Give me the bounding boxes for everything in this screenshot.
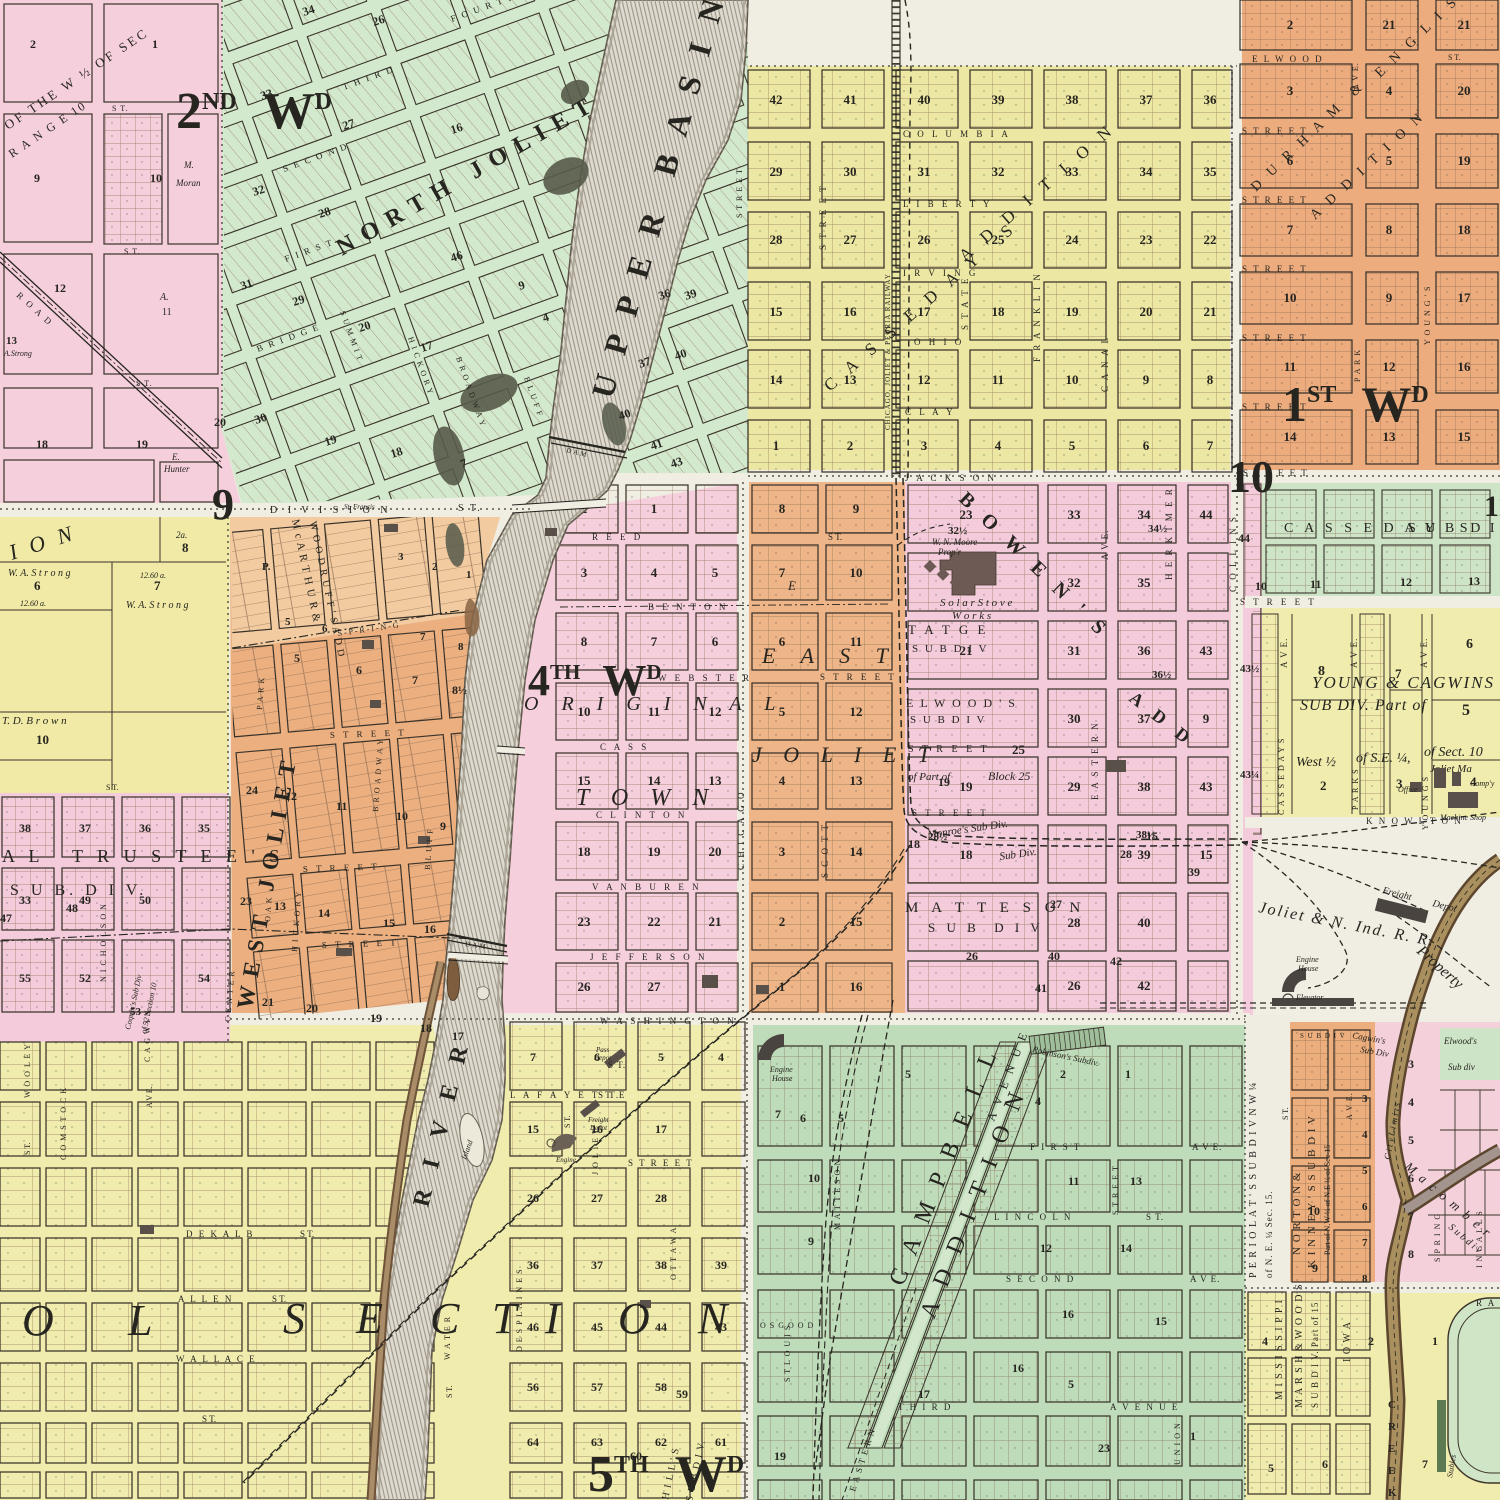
svg-text:C L A Y: C L A Y <box>905 407 956 417</box>
svg-text:43¼: 43¼ <box>1240 769 1259 781</box>
svg-text:Elwood's: Elwood's <box>1443 1036 1477 1046</box>
svg-text:57: 57 <box>591 1380 603 1394</box>
svg-text:37: 37 <box>591 1258 603 1272</box>
svg-text:55: 55 <box>19 971 31 985</box>
svg-text:9: 9 <box>1312 1261 1318 1275</box>
svg-text:34: 34 <box>1138 507 1152 522</box>
svg-text:23: 23 <box>1140 232 1154 247</box>
svg-text:12: 12 <box>1040 1241 1052 1255</box>
svg-text:SUB DIV. Part of: SUB DIV. Part of <box>1300 697 1428 714</box>
svg-text:38: 38 <box>1138 779 1152 794</box>
svg-text:F I R S T: F I R S T <box>1030 1142 1081 1152</box>
svg-text:32½: 32½ <box>948 525 967 537</box>
svg-text:15: 15 <box>1458 429 1472 444</box>
svg-text:36: 36 <box>527 1258 539 1272</box>
svg-text:C A S S E D A Y S: C A S S E D A Y S <box>1277 738 1286 815</box>
svg-text:K I N N E Y ' S S U B D I V: K I N N E Y ' S S U B D I V <box>1306 1115 1318 1268</box>
svg-text:T O W N: T O W N <box>576 785 716 811</box>
svg-text:22: 22 <box>1204 232 1217 247</box>
svg-text:6: 6 <box>34 578 41 593</box>
svg-text:E L W O O D ' S: E L W O O D ' S <box>906 696 1017 710</box>
svg-text:S T R E E T: S T R E E T <box>1242 333 1308 343</box>
svg-text:23: 23 <box>578 914 592 929</box>
svg-text:19: 19 <box>938 775 950 789</box>
svg-text:C L I N T O N: C L I N T O N <box>596 810 687 820</box>
svg-text:21: 21 <box>709 914 722 929</box>
svg-text:C: C <box>1388 1399 1396 1411</box>
svg-text:E: E <box>355 1294 383 1343</box>
svg-text:46: 46 <box>527 1320 539 1334</box>
svg-text:43½: 43½ <box>1240 663 1259 675</box>
svg-text:I: I <box>544 1294 562 1343</box>
svg-text:St. Francis: St. Francis <box>344 503 375 511</box>
svg-text:30: 30 <box>1068 711 1081 726</box>
svg-text:29: 29 <box>770 164 784 179</box>
svg-text:54: 54 <box>198 971 210 985</box>
svg-text:17: 17 <box>918 1387 930 1401</box>
svg-text:20: 20 <box>306 1001 318 1015</box>
svg-text:A V E.: A V E. <box>1345 1092 1354 1120</box>
svg-text:C O M S T O C K: C O M S T O C K <box>59 1087 68 1160</box>
svg-text:9: 9 <box>212 480 234 529</box>
svg-text:36: 36 <box>1138 643 1152 658</box>
svg-text:R E E D: R E E D <box>592 532 643 542</box>
svg-text:15: 15 <box>1155 1314 1167 1328</box>
svg-text:11: 11 <box>1484 490 1500 523</box>
svg-text:38: 38 <box>655 1258 667 1272</box>
svg-text:52: 52 <box>79 971 91 985</box>
svg-text:5: 5 <box>1268 1461 1274 1475</box>
svg-text:S T A T E: S T A T E <box>960 277 970 330</box>
svg-text:N I C H O L S O N: N I C H O L S O N <box>99 903 108 982</box>
svg-text:S T.: S T. <box>1448 53 1461 62</box>
svg-text:19: 19 <box>1458 153 1472 168</box>
svg-text:1: 1 <box>466 569 472 581</box>
svg-text:9: 9 <box>1203 711 1210 726</box>
svg-text:42: 42 <box>770 92 783 107</box>
svg-text:8: 8 <box>1408 1247 1414 1261</box>
svg-text:M.: M. <box>183 160 194 170</box>
svg-text:8: 8 <box>1207 372 1214 387</box>
svg-text:O R I G I N A L: O R I G I N A L <box>524 693 784 715</box>
svg-text:7: 7 <box>530 1050 536 1064</box>
svg-text:S T.: S T. <box>106 783 119 792</box>
svg-text:39: 39 <box>715 1258 727 1272</box>
svg-text:1: 1 <box>1190 1429 1196 1443</box>
svg-text:1: 1 <box>152 37 158 51</box>
svg-text:12: 12 <box>918 372 931 387</box>
svg-text:6: 6 <box>1322 1457 1328 1471</box>
svg-text:P E R I O L A T ' S S U B D: P E R I O L A T ' S S U B D I V N W ¼ <box>1248 1082 1259 1278</box>
svg-text:43: 43 <box>1200 643 1214 658</box>
svg-text:S T R E E T: S T R E E T <box>1242 195 1308 205</box>
svg-text:J O L I E T: J O L I E T <box>591 1128 600 1175</box>
svg-text:6: 6 <box>1408 1171 1414 1185</box>
svg-text:19: 19 <box>1066 304 1080 319</box>
svg-text:11: 11 <box>1310 577 1321 591</box>
svg-text:7: 7 <box>1362 1237 1368 1249</box>
svg-text:E: E <box>1388 1465 1395 1477</box>
svg-text:22: 22 <box>648 914 661 929</box>
svg-text:5: 5 <box>1362 1165 1368 1177</box>
svg-text:House: House <box>1297 964 1319 973</box>
svg-text:7: 7 <box>412 673 418 687</box>
svg-text:19: 19 <box>648 844 662 859</box>
svg-text:44: 44 <box>1238 531 1250 545</box>
svg-text:C A N A L: C A N A L <box>1100 336 1110 392</box>
svg-text:64: 64 <box>527 1435 539 1449</box>
svg-text:A V E N U E: A V E N U E <box>1110 1402 1179 1412</box>
svg-text:12: 12 <box>54 281 66 295</box>
svg-text:10: 10 <box>1308 1204 1320 1218</box>
svg-text:26: 26 <box>918 232 932 247</box>
svg-text:8: 8 <box>458 641 464 653</box>
svg-text:14: 14 <box>850 844 864 859</box>
svg-text:37: 37 <box>79 821 91 835</box>
svg-text:15: 15 <box>527 1122 539 1136</box>
svg-text:A V E.: A V E. <box>1349 638 1359 668</box>
svg-text:23: 23 <box>1098 1441 1110 1455</box>
svg-text:24: 24 <box>246 783 258 797</box>
svg-text:23: 23 <box>240 894 252 908</box>
svg-text:A V E.: A V E. <box>1190 1274 1220 1284</box>
svg-text:1: 1 <box>651 501 658 516</box>
svg-text:10: 10 <box>1066 372 1079 387</box>
svg-text:18: 18 <box>36 437 48 451</box>
svg-text:11: 11 <box>162 307 172 318</box>
svg-text:E: E <box>1388 1443 1395 1455</box>
svg-text:S T.: S T. <box>23 1142 32 1155</box>
svg-text:YOUNG & CAGWINS: YOUNG & CAGWINS <box>1312 673 1495 692</box>
svg-text:2a.: 2a. <box>176 530 187 540</box>
svg-text:16: 16 <box>850 979 864 994</box>
svg-text:S T.: S T. <box>300 1229 314 1239</box>
svg-text:6: 6 <box>712 634 719 649</box>
svg-text:Block 25: Block 25 <box>988 769 1030 783</box>
svg-text:U N I O N: U N I O N <box>1173 1422 1182 1465</box>
svg-text:W A L L A C E: W A L L A C E <box>176 1354 257 1364</box>
svg-text:West ½: West ½ <box>1296 755 1336 770</box>
svg-text:S C O T T: S C O T T <box>820 823 830 878</box>
svg-text:41: 41 <box>1035 981 1047 995</box>
svg-text:E L W O O D: E L W O O D <box>1252 54 1324 64</box>
svg-text:36: 36 <box>139 821 151 835</box>
svg-text:A V E.: A V E. <box>1279 638 1289 668</box>
svg-text:56: 56 <box>527 1380 539 1394</box>
svg-text:S T R E E T: S T R E E T <box>1242 126 1308 136</box>
svg-text:3: 3 <box>1408 1057 1414 1071</box>
svg-text:S T.: S T. <box>124 247 141 256</box>
svg-text:8: 8 <box>1362 1273 1368 1285</box>
svg-text:K N O W L T O N: K N O W L T O N <box>1366 816 1463 826</box>
svg-text:of S.E. ¼,: of S.E. ¼, <box>1356 751 1410 766</box>
svg-text:S T R E E T: S T R E E T <box>908 744 990 755</box>
svg-text:D E K A L B: D E K A L B <box>186 1229 254 1239</box>
svg-text:N O R T O N &: N O R T O N & <box>1291 1172 1303 1256</box>
svg-text:28½: 28½ <box>928 831 947 843</box>
svg-text:7: 7 <box>1408 1209 1414 1223</box>
svg-text:18: 18 <box>992 304 1006 319</box>
svg-text:of N. E. ¼ Sec. 15.: of N. E. ¼ Sec. 15. <box>1264 1191 1274 1279</box>
svg-text:47: 47 <box>0 911 12 925</box>
svg-text:39: 39 <box>992 92 1006 107</box>
svg-text:L: L <box>127 1296 152 1345</box>
svg-text:25: 25 <box>1012 742 1026 757</box>
svg-text:N: N <box>697 1294 730 1343</box>
svg-text:18: 18 <box>908 837 920 851</box>
svg-text:19: 19 <box>370 1011 382 1025</box>
svg-text:5: 5 <box>838 1111 844 1125</box>
svg-text:21: 21 <box>1383 17 1396 32</box>
svg-text:S T.: S T. <box>202 1414 216 1424</box>
svg-text:S U B D I V: S U B D I V <box>1300 1032 1346 1040</box>
svg-text:21: 21 <box>1204 304 1217 319</box>
svg-text:T. D. B r o w n: T. D. B r o w n <box>2 715 67 727</box>
svg-text:2: 2 <box>1060 1067 1066 1081</box>
svg-text:13: 13 <box>6 335 18 347</box>
svg-text:S T R E E T: S T R E E T <box>820 672 897 682</box>
svg-text:A V E.: A V E. <box>1192 1142 1222 1152</box>
svg-text:W E B S T E R: W E B S T E R <box>658 673 752 683</box>
svg-text:14: 14 <box>1120 1241 1132 1255</box>
svg-text:Engine: Engine <box>555 1156 576 1164</box>
svg-text:4: 4 <box>1262 1334 1268 1348</box>
svg-text:3: 3 <box>581 565 588 580</box>
svg-text:5: 5 <box>1462 702 1470 719</box>
svg-text:12: 12 <box>1400 575 1412 589</box>
svg-text:S T R E E T: S T R E E T <box>1243 468 1309 478</box>
svg-text:32: 32 <box>992 164 1005 179</box>
svg-text:I O W A: I O W A <box>1342 1321 1353 1362</box>
svg-text:7: 7 <box>651 634 658 649</box>
svg-text:10: 10 <box>808 1171 820 1185</box>
svg-text:Pass: Pass <box>595 1046 610 1054</box>
svg-text:3: 3 <box>921 438 928 453</box>
svg-text:6: 6 <box>1466 637 1473 652</box>
svg-text:27: 27 <box>1050 897 1062 911</box>
svg-text:D E S P L A I N E S: D E S P L A I N E S <box>515 1268 524 1352</box>
svg-text:C O L L I N S: C O L L I N S <box>1228 515 1238 592</box>
svg-text:R: R <box>1388 1421 1397 1433</box>
svg-text:16: 16 <box>844 304 858 319</box>
svg-text:42: 42 <box>1138 978 1151 993</box>
svg-text:A V E.: A V E. <box>145 1086 154 1108</box>
svg-text:8: 8 <box>779 501 786 516</box>
svg-text:28: 28 <box>1120 847 1132 861</box>
svg-text:8: 8 <box>182 540 189 555</box>
svg-text:S P R I N G: S P R I N G <box>1433 1213 1442 1262</box>
svg-text:10: 10 <box>36 732 49 747</box>
svg-text:B E N T O N: B E N T O N <box>648 602 728 612</box>
svg-text:20: 20 <box>1458 83 1471 98</box>
svg-text:12.60 a.: 12.60 a. <box>140 571 166 580</box>
svg-text:Elevator: Elevator <box>1295 993 1324 1002</box>
svg-text:7: 7 <box>154 578 161 593</box>
svg-text:4: 4 <box>1408 1095 1414 1109</box>
svg-text:15: 15 <box>1200 847 1214 862</box>
svg-text:16: 16 <box>424 922 436 936</box>
svg-text:J A C K S O N: J A C K S O N <box>905 473 997 483</box>
svg-text:2: 2 <box>1287 17 1294 32</box>
svg-text:26: 26 <box>1068 978 1082 993</box>
svg-text:11: 11 <box>1068 1174 1079 1188</box>
svg-text:T A T G E: T A T G E <box>908 622 988 637</box>
svg-text:20: 20 <box>1140 304 1153 319</box>
svg-text:36: 36 <box>1204 92 1218 107</box>
svg-text:2: 2 <box>1368 1334 1374 1348</box>
svg-text:4: 4 <box>1362 1129 1368 1141</box>
svg-text:38½: 38½ <box>1136 829 1155 841</box>
svg-text:S U B D I V: S U B D I V <box>910 714 987 726</box>
svg-text:A.Strong: A.Strong <box>3 349 32 358</box>
svg-text:W. A. S t r o n g: W. A. S t r o n g <box>126 600 189 611</box>
svg-text:5: 5 <box>294 651 300 665</box>
svg-text:L I N C O L N: L I N C O L N <box>994 1212 1072 1222</box>
svg-text:E: E <box>787 578 796 593</box>
svg-text:S T.: S T. <box>1281 1107 1290 1120</box>
svg-text:S T.: S T. <box>563 1115 572 1128</box>
svg-text:Freight: Freight <box>587 1116 610 1124</box>
svg-text:S T R E E T: S T R E E T <box>1242 402 1308 412</box>
svg-text:of Sect. 10: of Sect. 10 <box>1424 745 1483 760</box>
svg-text:S T R E E T: S T R E E T <box>1242 264 1308 274</box>
svg-text:5: 5 <box>658 1050 664 1064</box>
svg-text:W A S H I N G T O N: W A S H I N G T O N <box>600 1016 737 1026</box>
svg-text:10: 10 <box>1284 290 1297 305</box>
svg-text:W A T E R: W A T E R <box>443 1316 452 1360</box>
svg-text:13: 13 <box>274 899 286 913</box>
svg-text:Moran: Moran <box>175 178 201 188</box>
svg-text:5: 5 <box>905 1067 911 1081</box>
svg-text:4: 4 <box>995 438 1002 453</box>
svg-text:3: 3 <box>779 844 786 859</box>
svg-text:16: 16 <box>1458 359 1472 374</box>
svg-text:15: 15 <box>770 304 784 319</box>
svg-text:38: 38 <box>1066 92 1080 107</box>
svg-text:19: 19 <box>136 437 148 451</box>
svg-text:CHICAGO, JOLIET & PEORIA RAILW: CHICAGO, JOLIET & PEORIA RAILWAY <box>884 273 892 430</box>
svg-text:11: 11 <box>1284 359 1296 374</box>
svg-text:2: 2 <box>30 37 36 51</box>
svg-text:S U B. D I V.: S U B. D I V. <box>10 882 147 899</box>
svg-text:9: 9 <box>440 819 446 833</box>
svg-text:E A S T E R N: E A S T E R N <box>1090 721 1100 800</box>
svg-text:S U B D I V: S U B D I V <box>912 643 989 655</box>
svg-text:17: 17 <box>1458 290 1472 305</box>
svg-text:39: 39 <box>1188 865 1200 879</box>
svg-text:36½: 36½ <box>1152 669 1171 681</box>
svg-text:28: 28 <box>770 232 784 247</box>
svg-text:L I B E R T Y: L I B E R T Y <box>903 199 993 209</box>
svg-text:S T.: S T. <box>112 104 129 113</box>
svg-text:8: 8 <box>1318 664 1325 679</box>
svg-text:S U B D I V.: S U B D I V. <box>1408 521 1500 536</box>
svg-text:24: 24 <box>1066 232 1080 247</box>
svg-text:17: 17 <box>655 1122 667 1136</box>
svg-text:O T T A W A: O T T A W A <box>669 1227 678 1280</box>
svg-text:4: 4 <box>1035 1094 1041 1108</box>
svg-text:20: 20 <box>214 415 226 429</box>
svg-text:48: 48 <box>66 901 78 915</box>
svg-text:41: 41 <box>844 92 857 107</box>
svg-text:P.: P. <box>262 561 271 573</box>
svg-text:O H I O: O H I O <box>914 337 964 347</box>
svg-text:7: 7 <box>1287 222 1294 237</box>
svg-text:Engine: Engine <box>1295 955 1319 964</box>
svg-text:3: 3 <box>1287 83 1294 98</box>
svg-text:S U B D I V: S U B D I V <box>928 920 1044 935</box>
svg-text:19: 19 <box>774 1449 786 1463</box>
svg-text:1: 1 <box>1432 1334 1438 1348</box>
svg-text:O A K: O A K <box>263 896 274 922</box>
svg-text:M A T T E S O N: M A T T E S O N <box>833 1159 842 1230</box>
svg-text:F R A N K L I N: F R A N K L I N <box>1032 272 1042 362</box>
svg-text:Hunter: Hunter <box>163 464 190 474</box>
svg-text:26: 26 <box>578 979 592 994</box>
svg-text:6: 6 <box>800 1111 806 1125</box>
svg-text:16: 16 <box>1062 1307 1074 1321</box>
svg-text:13: 13 <box>850 773 864 788</box>
svg-text:Engine: Engine <box>769 1065 793 1074</box>
svg-text:12: 12 <box>285 789 297 803</box>
svg-text:40: 40 <box>1048 949 1060 963</box>
svg-text:A V E.: A V E. <box>1351 62 1360 90</box>
svg-text:7: 7 <box>420 631 426 643</box>
svg-text:43: 43 <box>1200 779 1214 794</box>
svg-text:13: 13 <box>1468 574 1480 588</box>
svg-text:26: 26 <box>527 1191 539 1205</box>
svg-text:7: 7 <box>1395 666 1402 681</box>
svg-text:42: 42 <box>1110 954 1122 968</box>
svg-text:Part of N.W ¼ of N.E ¼ of Sec: Part of N.W ¼ of N.E ¼ of Sec 15 <box>1323 1145 1332 1255</box>
svg-text:W o r k s: W o r k s <box>952 610 991 622</box>
svg-text:S U B D I V. Part of 15: S U B D I V. Part of 15 <box>1310 1302 1320 1408</box>
svg-text:40: 40 <box>1138 915 1151 930</box>
svg-text:S T.: S T. <box>1146 1212 1164 1222</box>
svg-text:37: 37 <box>1140 92 1154 107</box>
svg-text:30: 30 <box>844 164 857 179</box>
svg-text:O: O <box>22 1296 54 1345</box>
svg-text:26: 26 <box>966 949 978 963</box>
svg-text:S T.: S T. <box>598 1090 620 1100</box>
svg-text:6: 6 <box>322 623 328 635</box>
svg-text:W O O L E Y: W O O L E Y <box>23 1043 32 1098</box>
svg-text:5: 5 <box>1068 1377 1074 1391</box>
svg-text:1: 1 <box>773 438 780 453</box>
svg-text:10: 10 <box>1255 579 1267 593</box>
svg-text:39: 39 <box>1138 847 1152 862</box>
svg-text:34½: 34½ <box>1148 523 1167 535</box>
svg-text:9: 9 <box>853 501 860 516</box>
svg-text:S T.: S T. <box>608 1060 626 1070</box>
svg-text:14: 14 <box>770 372 784 387</box>
svg-text:12.60 a.: 12.60 a. <box>20 599 46 608</box>
svg-text:3: 3 <box>398 551 404 563</box>
svg-text:58: 58 <box>655 1380 667 1394</box>
svg-text:M I S S I S S I P P I: M I S S I S S I P P I <box>1274 1299 1285 1400</box>
svg-text:7: 7 <box>775 1107 781 1121</box>
svg-text:4: 4 <box>1470 774 1477 789</box>
svg-text:J E F F E R S O N: J E F F E R S O N <box>590 952 708 962</box>
svg-text:9: 9 <box>808 1234 814 1248</box>
svg-text:S T.: S T. <box>445 1385 454 1398</box>
svg-text:34: 34 <box>1140 164 1154 179</box>
svg-text:13: 13 <box>1130 1174 1142 1188</box>
svg-text:S T.: S T. <box>272 1294 286 1304</box>
svg-text:S T R E E T: S T R E E T <box>1240 597 1317 607</box>
svg-text:45: 45 <box>591 1320 603 1334</box>
svg-text:44: 44 <box>1200 507 1214 522</box>
